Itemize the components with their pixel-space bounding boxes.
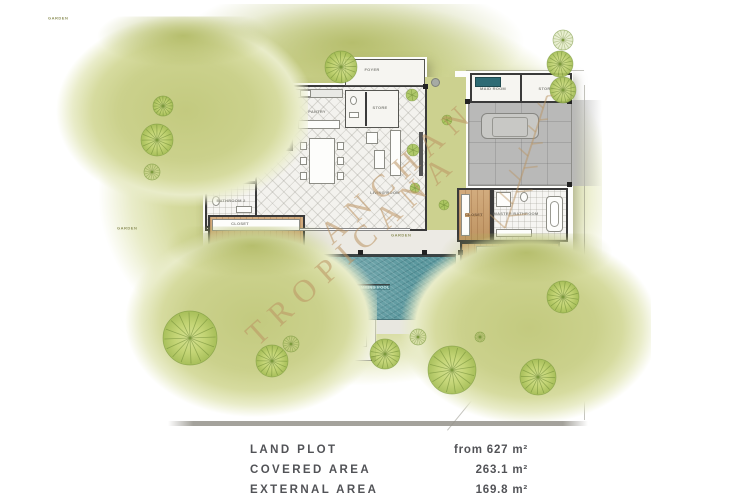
- room-label: GARDEN: [391, 234, 651, 449]
- wc-basin: [349, 112, 359, 118]
- info-label: LAND PLOT: [250, 444, 337, 456]
- drain-grate: [431, 78, 440, 87]
- pier: [567, 182, 572, 187]
- dining-table: [309, 138, 335, 184]
- shower: [496, 192, 511, 207]
- room-label: PANTRY: [308, 110, 326, 114]
- pier: [465, 99, 470, 104]
- info-label: EXTERNAL AREA: [250, 484, 378, 496]
- info-value: 169.8 m²: [476, 484, 528, 496]
- room-label: MASTER BATHROOM: [493, 212, 538, 216]
- foyer: [345, 59, 425, 86]
- dining-chair: [337, 157, 344, 165]
- carport: [468, 100, 572, 186]
- service-room-divider-wall: [520, 75, 522, 101]
- coffee-table: [374, 150, 385, 169]
- room-label: GARDEN: [48, 17, 308, 232]
- bathtub: [546, 196, 563, 232]
- room-label: FOYER: [364, 68, 379, 72]
- room-label: STORE: [373, 106, 388, 110]
- info-row: COVERED AREA263.1 m²: [250, 464, 528, 484]
- driveway: [572, 100, 602, 186]
- store-divider-wall: [365, 92, 367, 126]
- maid-bed: [475, 77, 501, 87]
- floor-plan-canvas: BEDROOM 3BATHROOM 3BATHROOM 2CLOSETBEDRO…: [0, 0, 750, 500]
- room-label: LIVING ROOM: [370, 191, 400, 195]
- info-row: EXTERNAL AREA169.8 m²: [250, 484, 528, 500]
- wc-toilet: [350, 96, 357, 105]
- master-toilet: [520, 192, 528, 202]
- info-value: 263.1 m²: [476, 464, 528, 476]
- dining-chair: [337, 172, 344, 180]
- room-label: STORE: [539, 87, 554, 91]
- room-label: MAID ROOM: [480, 87, 506, 91]
- tv-console: [419, 132, 423, 176]
- area-info-table: LAND PLOTfrom 627 m²COVERED AREA263.1 m²…: [250, 444, 528, 500]
- info-label: COVERED AREA: [250, 464, 371, 476]
- pier: [567, 99, 572, 104]
- info-value: from 627 m²: [454, 444, 528, 456]
- car-icon: [481, 113, 539, 139]
- sofa: [390, 130, 401, 176]
- dining-chair: [337, 142, 344, 150]
- room-label: CLOSET: [465, 213, 483, 217]
- room-label: GARDEN: [117, 227, 377, 442]
- pier: [423, 84, 428, 89]
- separator-line: [168, 421, 588, 426]
- info-row: LAND PLOTfrom 627 m²: [250, 444, 528, 464]
- armchair: [366, 132, 378, 144]
